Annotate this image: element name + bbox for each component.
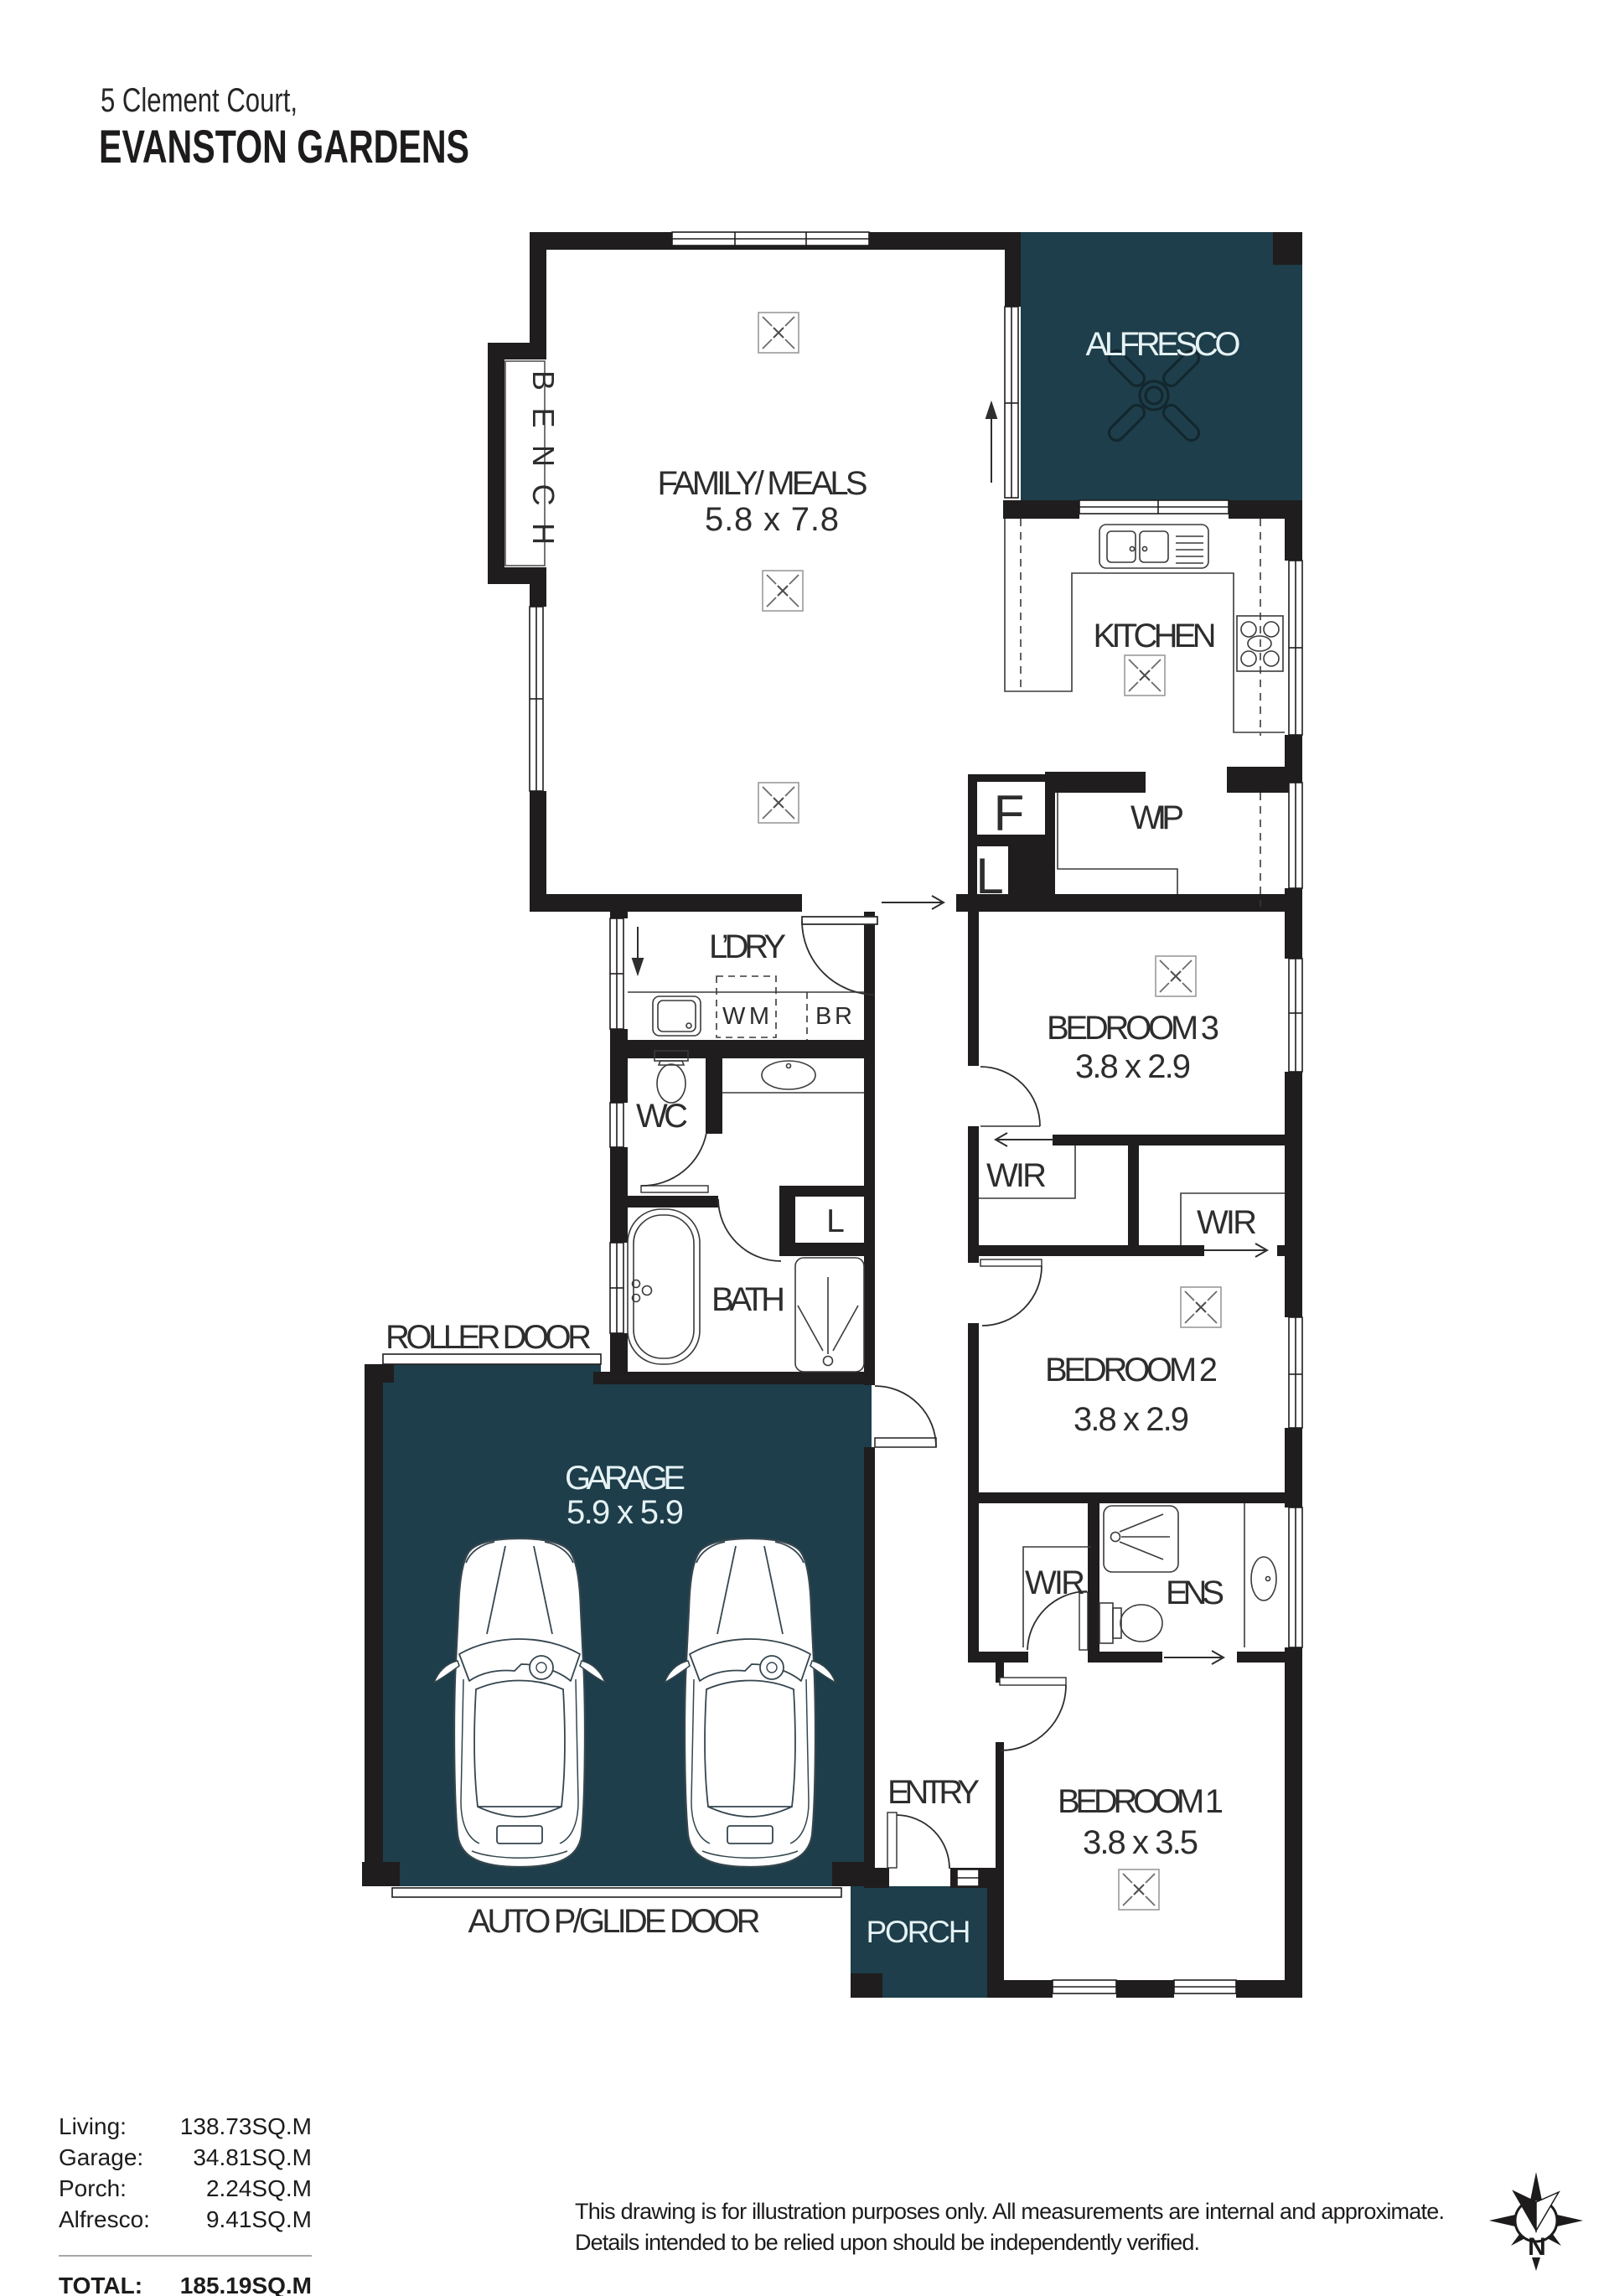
svg-text:Alfresco:: Alfresco: [59,2206,150,2232]
svg-text:3.8 x 2.9: 3.8 x 2.9 [1075,1048,1191,1085]
svg-text:ENS: ENS [1166,1575,1224,1611]
svg-text:5.8 x 7.8: 5.8 x 7.8 [705,501,839,538]
svg-text:5 Clement Court,: 5 Clement Court, [101,82,297,119]
svg-text:GARAGE: GARAGE [565,1460,686,1497]
svg-text:3.8 x 2.9: 3.8 x 2.9 [1074,1401,1189,1438]
svg-text:ALFRESCO: ALFRESCO [1086,326,1241,363]
svg-text:BEDROOM 1: BEDROOM 1 [1058,1783,1224,1820]
svg-text:FAMILY/ MEALS: FAMILY/ MEALS [658,465,868,502]
svg-text:Porch:: Porch: [59,2175,127,2201]
svg-text:WIR: WIR [986,1157,1047,1194]
svg-text:ROLLER DOOR: ROLLER DOOR [385,1319,592,1356]
svg-text:34.81SQ.M: 34.81SQ.M [193,2144,312,2170]
svg-text:WC: WC [636,1098,688,1135]
svg-text:BATH: BATH [711,1281,785,1318]
svg-text:TOTAL:: TOTAL: [59,2273,142,2296]
svg-text:F: F [994,785,1025,841]
svg-text:BEDROOM 2: BEDROOM 2 [1045,1352,1218,1388]
svg-text:KITCHEN: KITCHEN [1094,618,1217,654]
svg-text:5.9 x 5.9: 5.9 x 5.9 [567,1494,684,1531]
svg-text:L’DRY: L’DRY [709,928,786,965]
svg-text:WIP: WIP [1130,799,1184,836]
svg-text:BR: BR [815,1003,852,1030]
svg-text:L: L [975,848,1003,904]
svg-text:This drawing is for illustrati: This drawing is for illustration purpose… [575,2199,1445,2224]
svg-text:3.8 x 3.5: 3.8 x 3.5 [1083,1824,1198,1861]
svg-text:ENTRY: ENTRY [887,1774,980,1811]
svg-text:EVANSTON GARDENS: EVANSTON GARDENS [99,120,469,173]
svg-text:BENCH: BENCH [526,370,561,556]
svg-text:BEDROOM 3: BEDROOM 3 [1047,1010,1219,1047]
svg-text:L: L [826,1203,845,1239]
svg-text:AUTO P/GLIDE DOOR: AUTO P/GLIDE DOOR [468,1903,761,1940]
svg-text:WM: WM [722,1003,769,1030]
svg-text:138.73SQ.M: 138.73SQ.M [180,2113,312,2139]
svg-text:Living:: Living: [59,2113,127,2139]
svg-text:9.41SQ.M: 9.41SQ.M [206,2206,312,2232]
svg-text:185.19SQ.M: 185.19SQ.M [180,2273,312,2296]
svg-text:2.24SQ.M: 2.24SQ.M [206,2175,312,2201]
svg-text:PORCH: PORCH [867,1915,971,1949]
svg-text:WIR: WIR [1197,1204,1257,1241]
svg-text:N: N [1528,2233,1546,2261]
svg-text:Garage:: Garage: [59,2144,143,2170]
svg-text:Details intended to be relied: Details intended to be relied upon shoul… [575,2230,1200,2255]
svg-text:WIR: WIR [1025,1564,1085,1601]
